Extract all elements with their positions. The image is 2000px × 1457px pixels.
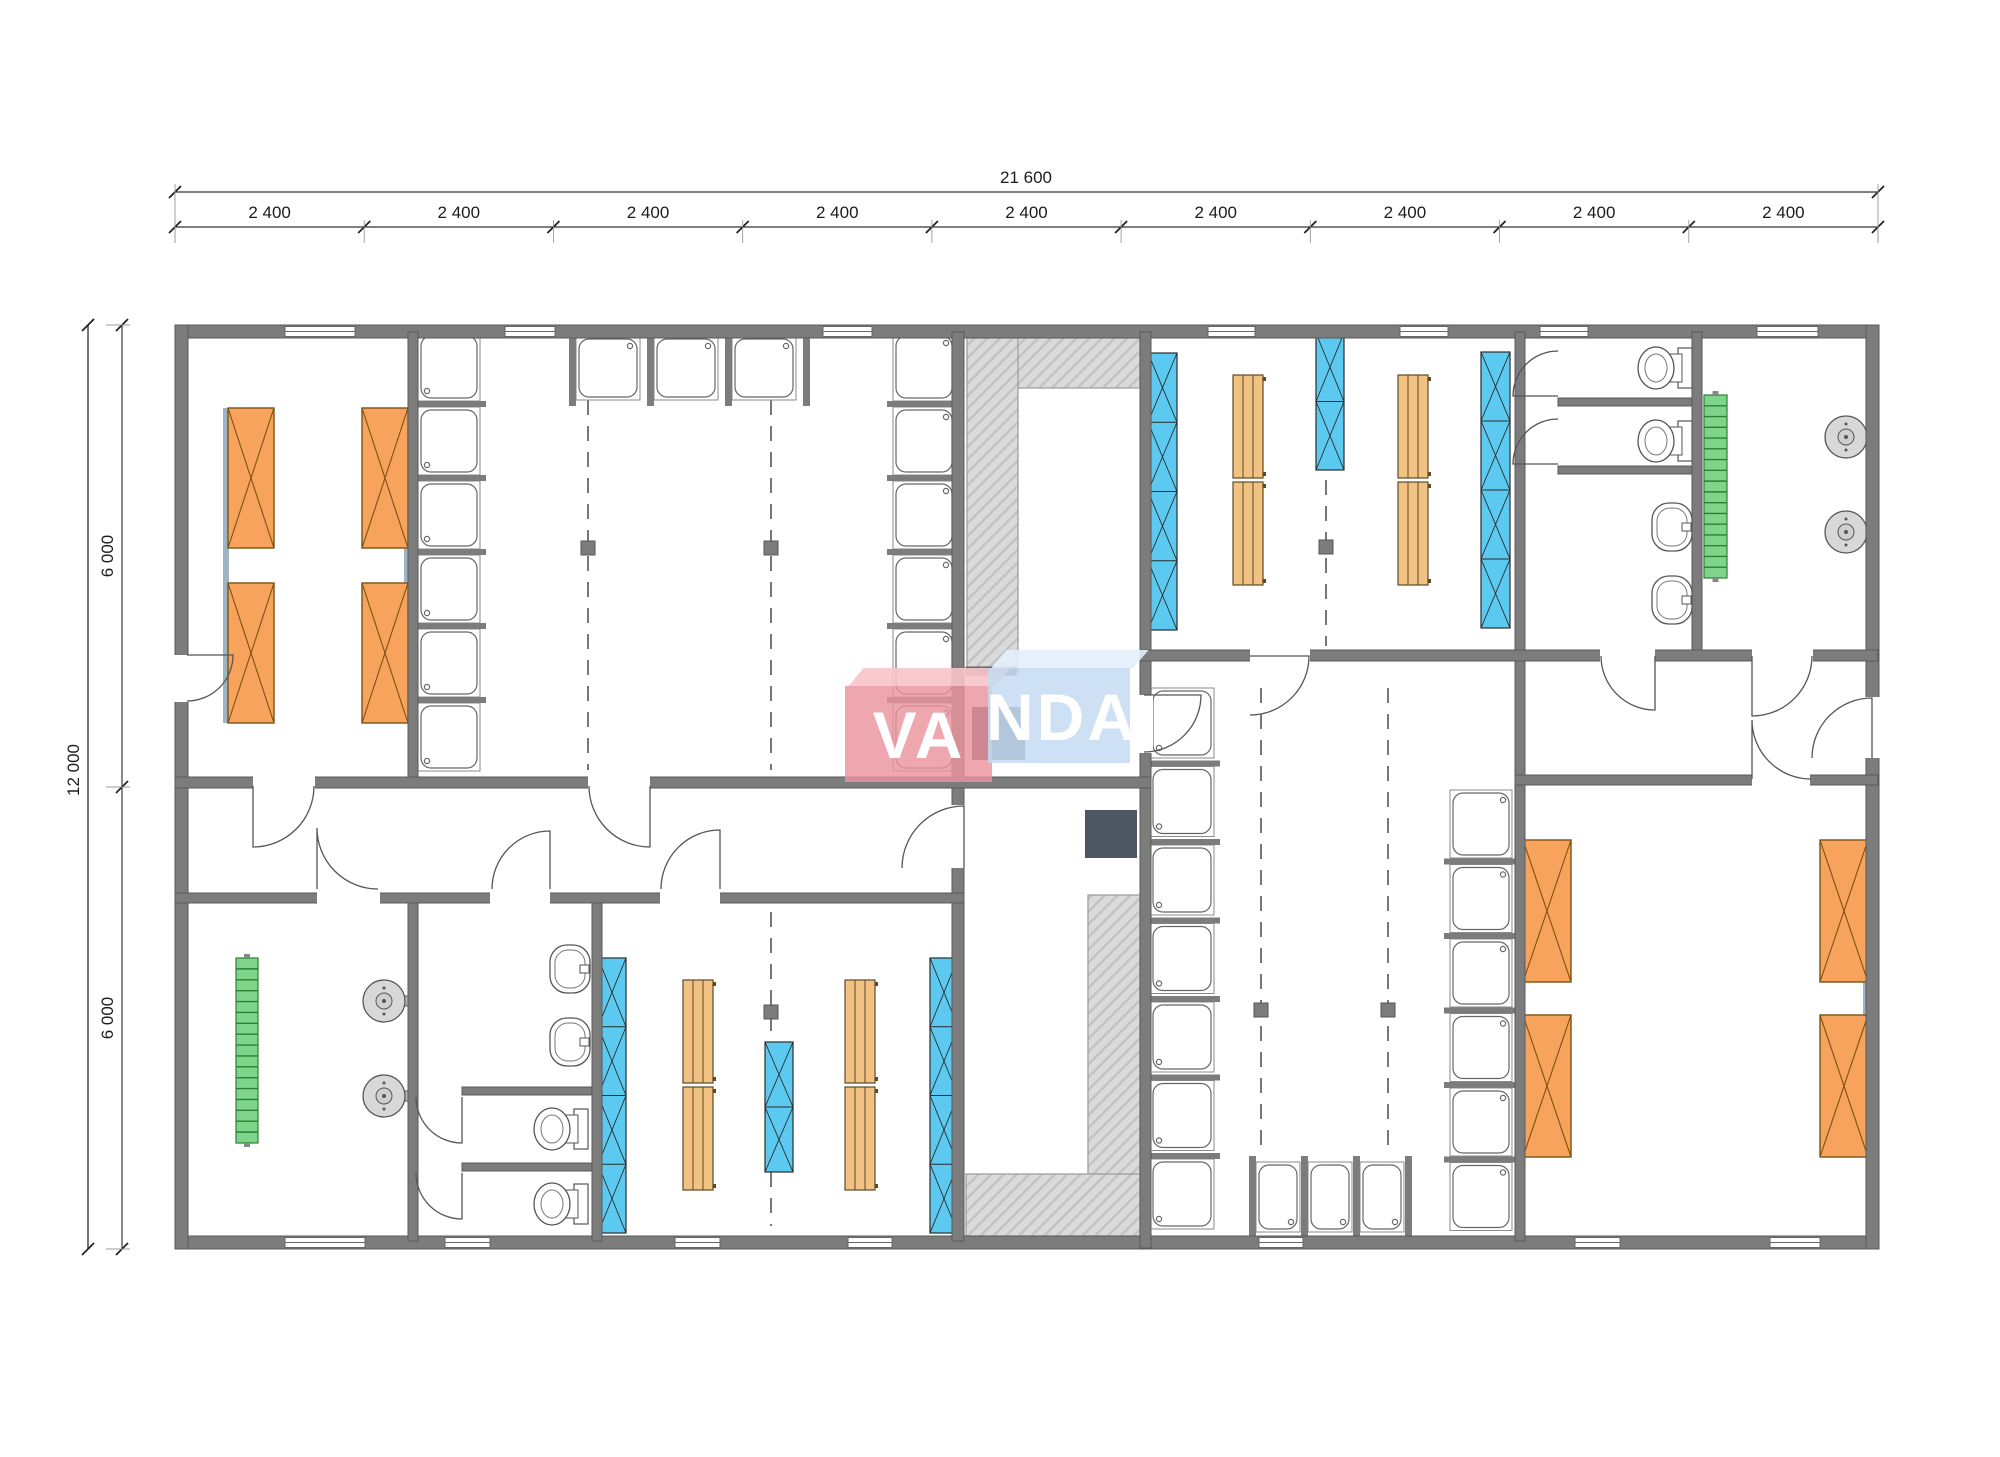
column [581, 541, 595, 555]
door-swing [492, 831, 550, 889]
hatched-floor [966, 1174, 1140, 1236]
door-swing [416, 1173, 462, 1219]
door-swing [253, 786, 314, 847]
floor-mat [1085, 810, 1137, 858]
floor-plan: VA NDA 21 600 2 4002 4002 4002 4002 4002… [0, 0, 2000, 1457]
bench [1398, 375, 1431, 478]
door-swing [1812, 698, 1872, 758]
column [764, 541, 778, 555]
bed [228, 408, 274, 548]
bench [1233, 482, 1266, 585]
shower-tray [418, 629, 480, 697]
sink [550, 1018, 590, 1066]
shower-tray [893, 481, 955, 549]
locker-cabinet [1148, 353, 1177, 630]
column [1319, 540, 1333, 554]
bed [1523, 840, 1571, 982]
bed [1820, 840, 1868, 982]
door-swing [1752, 656, 1812, 716]
shower-tray [1450, 865, 1512, 933]
shower-tray [893, 333, 955, 401]
shower-tray [1150, 767, 1214, 837]
dim-segment-label: 2 400 [603, 203, 693, 223]
bed [1820, 1015, 1868, 1157]
shower-tray [1450, 1014, 1512, 1082]
door-swing [589, 786, 650, 847]
dim-segment-label: 2 400 [982, 203, 1072, 223]
locker-cabinet [765, 1042, 793, 1172]
column [1254, 1003, 1268, 1017]
shower-tray [1450, 1088, 1512, 1156]
shower-tray [893, 555, 955, 623]
dim-left-segment-label: 6 000 [98, 511, 118, 601]
shower-tray [418, 481, 480, 549]
column [1381, 1003, 1395, 1017]
sink [1652, 576, 1692, 624]
dim-segment-label: 2 400 [1549, 203, 1639, 223]
ladder [1704, 391, 1727, 582]
toilet [1638, 420, 1692, 462]
locker-cabinet [1481, 352, 1510, 628]
bench [1398, 482, 1431, 585]
bed [1523, 1015, 1571, 1157]
shower-tray [418, 407, 480, 475]
door-swing [416, 1097, 462, 1143]
dim-segment-label: 2 400 [1360, 203, 1450, 223]
shower-tray [1360, 1162, 1404, 1232]
water-heater [363, 1075, 413, 1117]
watermark-text-left: VA [845, 702, 993, 768]
dim-segment-label: 2 400 [225, 203, 315, 223]
shower-tray [1450, 790, 1512, 858]
shower-tray [654, 336, 718, 400]
hatched-floor [967, 332, 1018, 672]
water-heater [363, 980, 413, 1022]
shower-tray [418, 333, 480, 401]
shower-tray [1308, 1162, 1352, 1232]
shower-tray [1150, 688, 1214, 758]
toilet [1638, 347, 1692, 389]
shower-tray [1150, 1002, 1214, 1072]
locker-cabinet [1316, 333, 1344, 470]
shower-tray [1150, 924, 1214, 994]
sink [1652, 503, 1692, 551]
door-swing [661, 830, 720, 889]
shower-tray [418, 555, 480, 623]
dimension-total-height: 12 000 [64, 725, 84, 815]
bench [845, 1087, 878, 1190]
shower-tray [1450, 939, 1512, 1007]
shower-tray [1256, 1162, 1300, 1232]
shower-tray [1450, 1163, 1512, 1231]
dim-segment-label: 2 400 [1171, 203, 1261, 223]
dim-segment-label: 2 400 [414, 203, 504, 223]
door-swing [1752, 720, 1811, 779]
shower-tray [1150, 1159, 1214, 1229]
bench [683, 980, 716, 1083]
shower-tray [732, 336, 796, 400]
door-swing [317, 828, 378, 889]
shower-tray [1150, 1081, 1214, 1151]
toilet [534, 1183, 588, 1225]
watermark-blue-top [991, 650, 1148, 668]
watermark-text-right: NDA [986, 684, 1132, 750]
dim-left-segment-label: 6 000 [98, 973, 118, 1063]
dimension-total-width: 21 600 [981, 168, 1071, 188]
bench [683, 1087, 716, 1190]
door-swing [1250, 656, 1309, 715]
shower-tray [1150, 845, 1214, 915]
column [764, 1005, 778, 1019]
dim-segment-label: 2 400 [792, 203, 882, 223]
ladder [236, 954, 258, 1147]
bench [1233, 375, 1266, 478]
shower-tray [893, 407, 955, 475]
bed [362, 583, 408, 723]
bench [845, 980, 878, 1083]
bed [362, 408, 408, 548]
shower-tray [418, 703, 480, 771]
bed [228, 583, 274, 723]
shower-tray [576, 336, 640, 400]
door-swing [1601, 656, 1655, 710]
sink [550, 945, 590, 993]
toilet [534, 1108, 588, 1150]
dim-segment-label: 2 400 [1738, 203, 1828, 223]
